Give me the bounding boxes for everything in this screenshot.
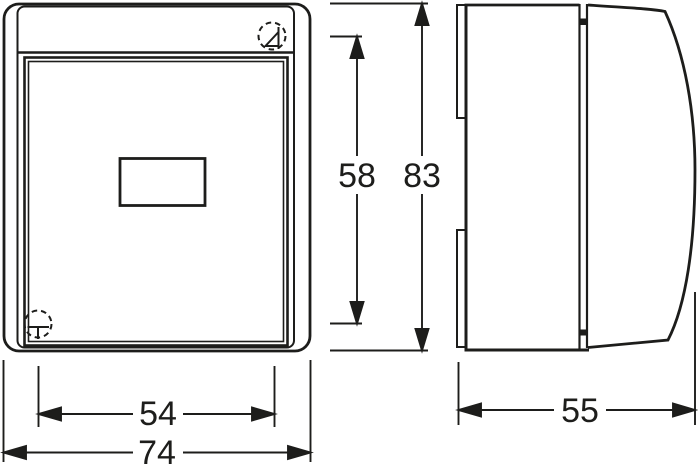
label-window bbox=[120, 159, 205, 206]
side-mounting-tab-bottom bbox=[457, 230, 466, 347]
side-hinge-pin-top bbox=[579, 19, 587, 26]
arrowhead-right-icon bbox=[673, 404, 695, 417]
arrowhead-left-icon bbox=[459, 404, 482, 417]
front-lid-outer bbox=[25, 58, 288, 346]
side-view bbox=[457, 4, 695, 351]
dimension-drawing: 54 74 58 83 55 bbox=[0, 0, 698, 474]
dimension-value-55: 55 bbox=[561, 392, 599, 430]
arrowhead-up-icon bbox=[416, 4, 429, 26]
front-view bbox=[4, 4, 310, 351]
side-mounting-tab-top bbox=[457, 5, 466, 118]
arrowhead-left-icon bbox=[4, 446, 27, 459]
dimension-value-54: 54 bbox=[139, 395, 177, 433]
arrowhead-down-icon bbox=[416, 329, 429, 351]
front-lid-inner bbox=[29, 62, 284, 342]
side-lid-profile bbox=[588, 5, 695, 348]
dimension-value-58: 58 bbox=[338, 157, 376, 195]
dimension-value-74: 74 bbox=[138, 434, 176, 472]
arrowhead-down-icon bbox=[351, 302, 364, 324]
dimension-value-83: 83 bbox=[403, 157, 441, 195]
dimension-labels: 54 74 58 83 55 bbox=[138, 157, 599, 472]
arrowhead-right-icon bbox=[252, 408, 275, 421]
screw-fixing-icon-top-right bbox=[259, 23, 286, 50]
arrowhead-up-icon bbox=[351, 37, 364, 59]
side-hinge-pin-bottom bbox=[579, 330, 587, 336]
arrowhead-left-icon bbox=[39, 408, 62, 421]
arrowhead-right-icon bbox=[288, 446, 311, 459]
front-outer-cover bbox=[4, 4, 310, 351]
